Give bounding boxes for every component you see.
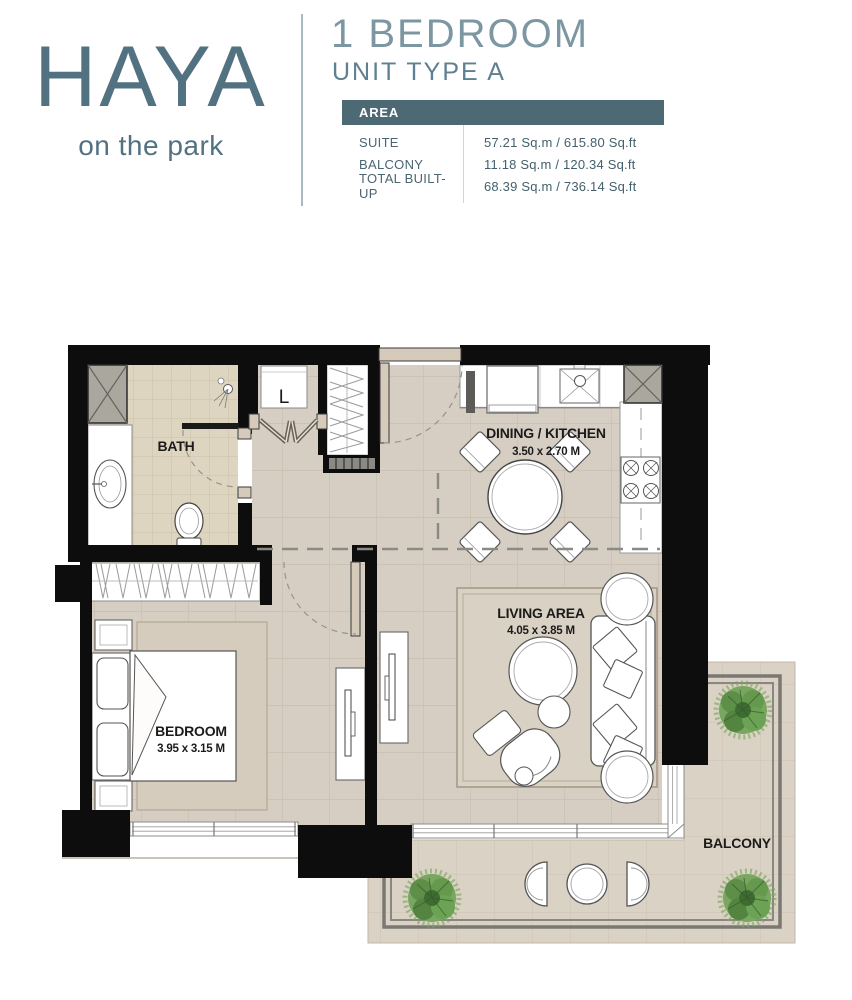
wall	[365, 545, 377, 825]
unit-subtitle: UNIT TYPE A	[332, 58, 506, 87]
table-row: TOTAL BUILT-UP 68.39 Sq.m / 736.14 Sq.ft	[342, 175, 664, 197]
nightstand	[95, 781, 132, 811]
row-label: TOTAL BUILT-UP	[342, 171, 463, 201]
nightstand	[95, 620, 132, 650]
tv	[389, 654, 395, 720]
wall	[62, 810, 130, 857]
column-divider	[463, 125, 464, 203]
row-value: 57.21 Sq.m / 615.80 Sq.ft	[463, 135, 636, 150]
wall	[368, 345, 380, 473]
row-label: BALCONY	[342, 157, 463, 172]
bath-door	[182, 423, 239, 429]
tv	[345, 690, 351, 756]
living-window	[411, 824, 683, 838]
room-label: BEDROOM	[155, 723, 227, 739]
wall	[260, 562, 272, 605]
floor-lamp	[515, 767, 533, 785]
brochure-page: HAYA on the park 1 BEDROOM UNIT TYPE A A…	[0, 0, 852, 1000]
vanity-faucet-head	[102, 482, 107, 487]
room-dimensions: 3.50 x 2.70 M	[512, 446, 580, 458]
shower-valve	[218, 378, 224, 384]
side-table	[601, 573, 653, 625]
fridge-base	[489, 405, 536, 412]
side-table	[601, 751, 653, 803]
vertical-divider	[301, 14, 303, 206]
balcony-table	[567, 864, 607, 904]
room-label: BALCONY	[703, 835, 772, 851]
coffee-table	[509, 637, 577, 705]
tv-mount	[351, 712, 355, 736]
unit-title: 1 BEDROOM	[331, 12, 589, 57]
area-table-header: AREA	[342, 100, 664, 125]
wall	[238, 503, 252, 562]
room-label: BATH	[157, 438, 194, 454]
room-label: DINING / KITCHEN	[486, 425, 606, 441]
wall	[68, 345, 380, 365]
row-value: 11.18 Sq.m / 120.34 Sq.ft	[463, 157, 635, 172]
area-table: AREA SUITE 57.21 Sq.m / 615.80 Sq.ft BAL…	[342, 100, 664, 197]
tv-mount	[385, 676, 389, 700]
area-table-body: SUITE 57.21 Sq.m / 615.80 Sq.ft BALCONY …	[342, 125, 664, 197]
wall	[298, 825, 412, 878]
row-label: SUITE	[342, 135, 463, 150]
entry-closet	[327, 365, 368, 455]
wall	[55, 565, 82, 602]
table-row: SUITE 57.21 Sq.m / 615.80 Sq.ft	[342, 131, 664, 153]
sink-drain	[575, 376, 586, 387]
door-post	[238, 487, 251, 498]
brand-name: HAYA	[10, 34, 292, 120]
brand-tagline: on the park	[10, 130, 292, 162]
entry-door	[380, 363, 389, 443]
room-label: L	[279, 387, 290, 408]
wall	[80, 562, 92, 823]
wall	[68, 365, 88, 562]
pillow	[97, 723, 128, 776]
door-post	[238, 428, 251, 439]
wall-panel	[466, 371, 475, 413]
floor-plan: BATH L DINING / KITCHEN 3.50 x 2.70 M LI…	[0, 330, 852, 1000]
dining-table	[488, 460, 562, 534]
door-post	[249, 414, 259, 429]
balcony-window	[668, 764, 684, 838]
row-value: 68.39 Sq.m / 736.14 Sq.ft	[463, 179, 636, 194]
wall	[250, 365, 258, 417]
pillow	[97, 658, 128, 709]
brand-logo: HAYA on the park	[10, 34, 292, 162]
room-dimensions: 3.95 x 3.15 M	[157, 743, 225, 755]
wall	[662, 350, 708, 765]
hall-furniture	[380, 632, 408, 743]
entry-lintel	[379, 348, 461, 361]
coffee-table-small	[538, 696, 570, 728]
wall	[318, 365, 327, 455]
room-dimensions: 4.05 x 3.85 M	[507, 625, 575, 637]
room-label: LIVING AREA	[497, 605, 585, 621]
bedroom-door	[351, 562, 360, 636]
